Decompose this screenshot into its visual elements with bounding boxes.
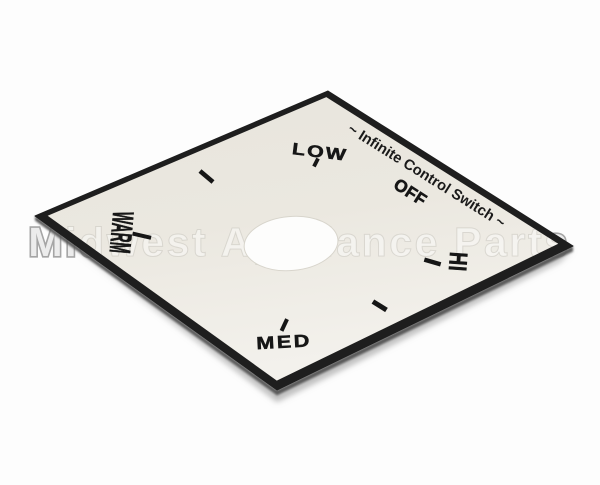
- svg-text:HI: HI: [443, 251, 473, 272]
- svg-text:MED: MED: [256, 331, 313, 353]
